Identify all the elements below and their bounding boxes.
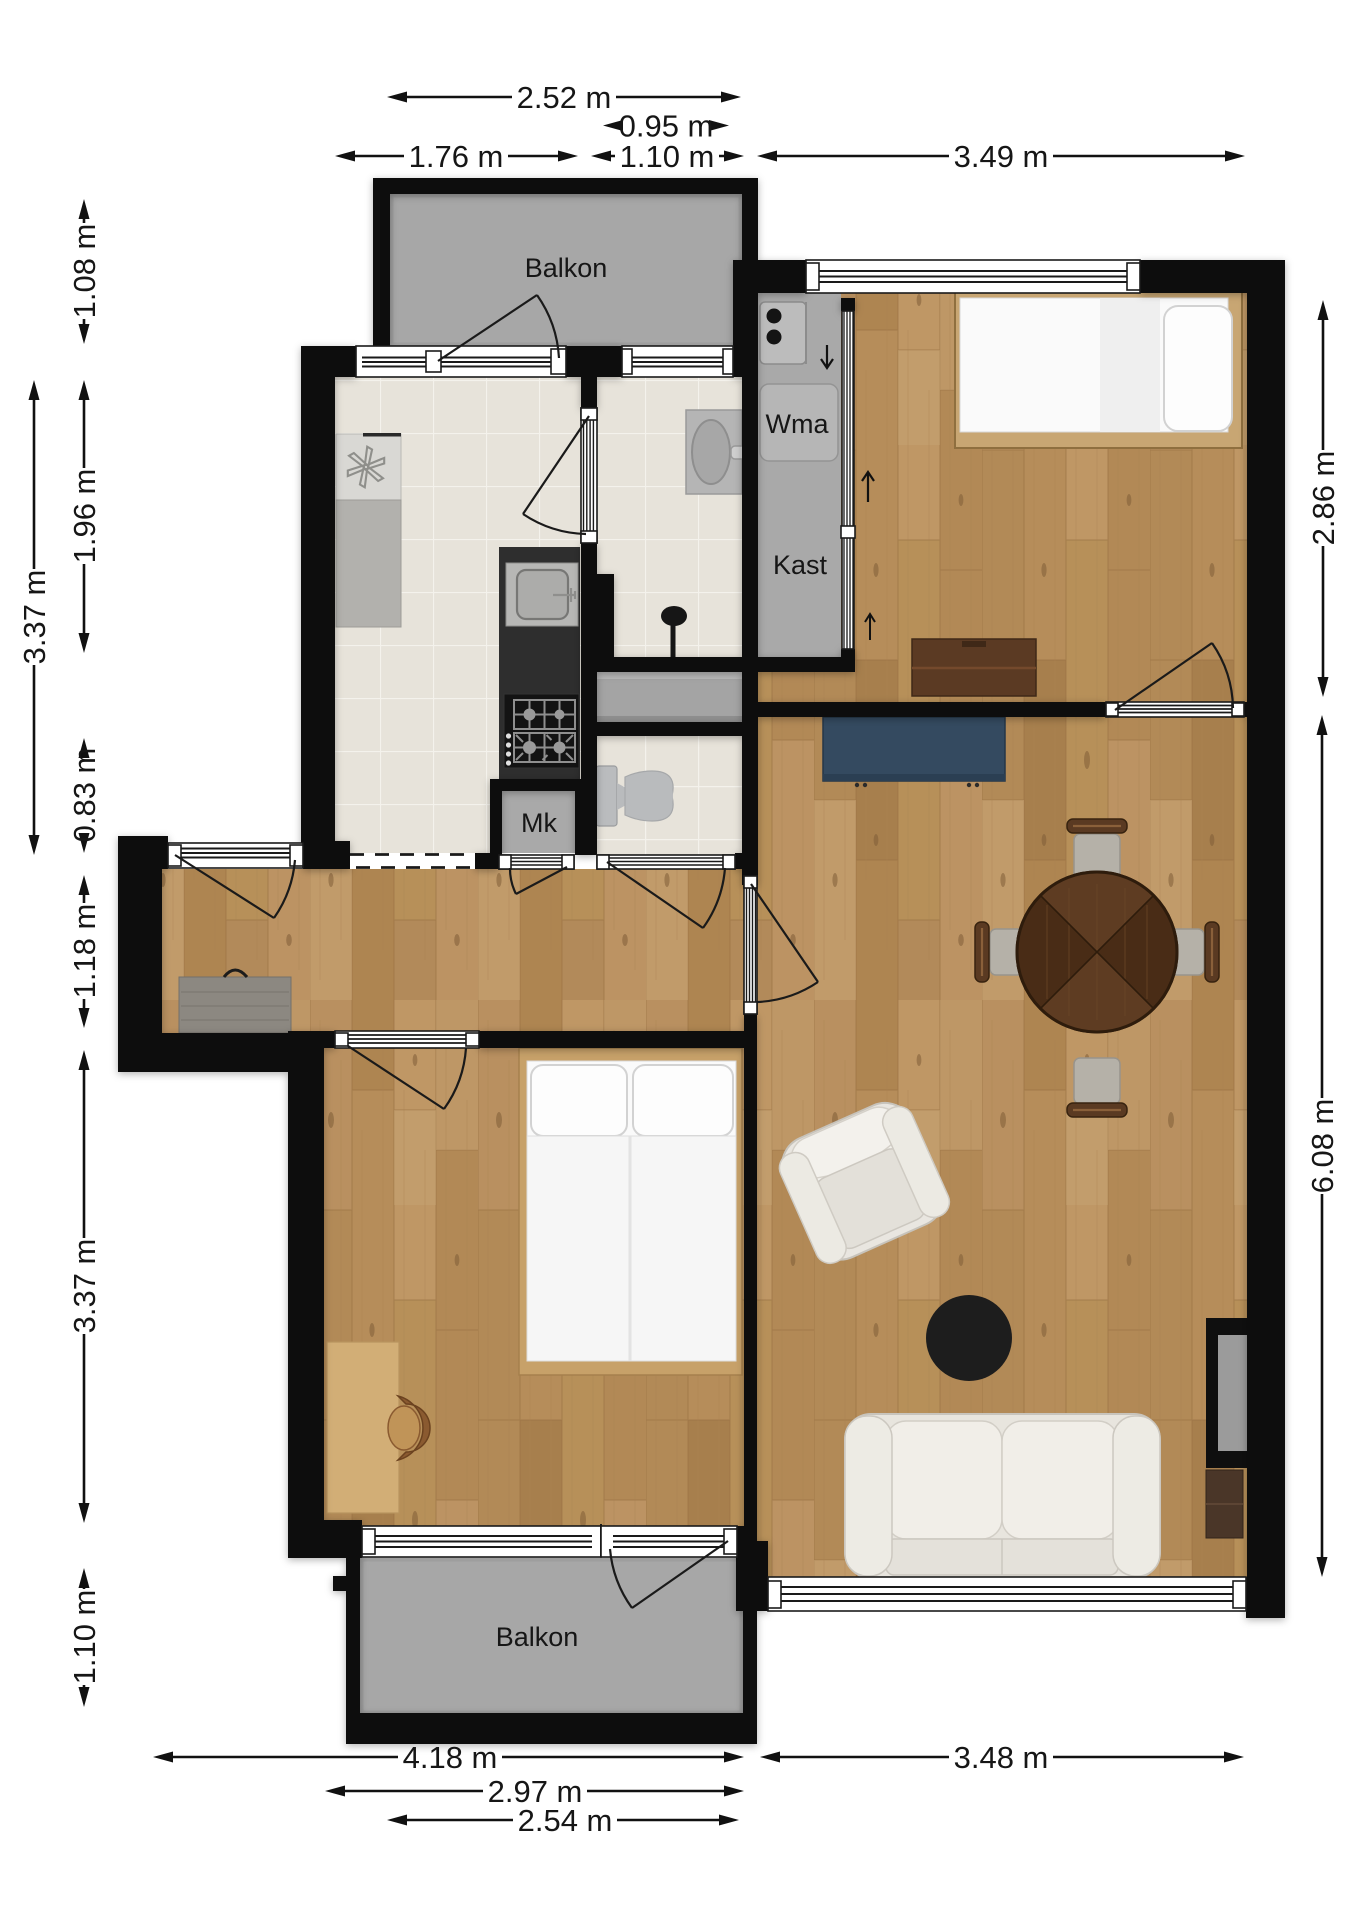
svg-text:1.08 m: 1.08 m — [67, 224, 102, 319]
svg-text:0.83 m: 0.83 m — [67, 748, 102, 843]
svg-text:4.18 m: 4.18 m — [403, 1740, 498, 1775]
svg-text:2.52 m: 2.52 m — [517, 80, 612, 115]
svg-text:1.10 m: 1.10 m — [67, 1590, 102, 1685]
svg-text:6.08 m: 6.08 m — [1305, 1099, 1340, 1194]
svg-text:1.10 m: 1.10 m — [620, 139, 715, 174]
svg-text:Kast: Kast — [773, 550, 828, 580]
svg-text:3.48 m: 3.48 m — [954, 1740, 1049, 1775]
svg-text:Balkon: Balkon — [496, 1622, 579, 1652]
svg-text:3.37 m: 3.37 m — [67, 1239, 102, 1334]
svg-text:3.49 m: 3.49 m — [954, 139, 1049, 174]
svg-text:Mk: Mk — [521, 808, 557, 838]
svg-text:1.18 m: 1.18 m — [67, 904, 102, 999]
svg-text:3.37 m: 3.37 m — [17, 570, 52, 665]
svg-text:2.86 m: 2.86 m — [1306, 451, 1341, 546]
svg-text:Wma: Wma — [766, 409, 830, 439]
svg-text:Balkon: Balkon — [525, 253, 608, 283]
svg-text:1.76 m: 1.76 m — [409, 139, 504, 174]
svg-text:1.96 m: 1.96 m — [67, 469, 102, 564]
svg-text:2.54 m: 2.54 m — [518, 1803, 613, 1838]
